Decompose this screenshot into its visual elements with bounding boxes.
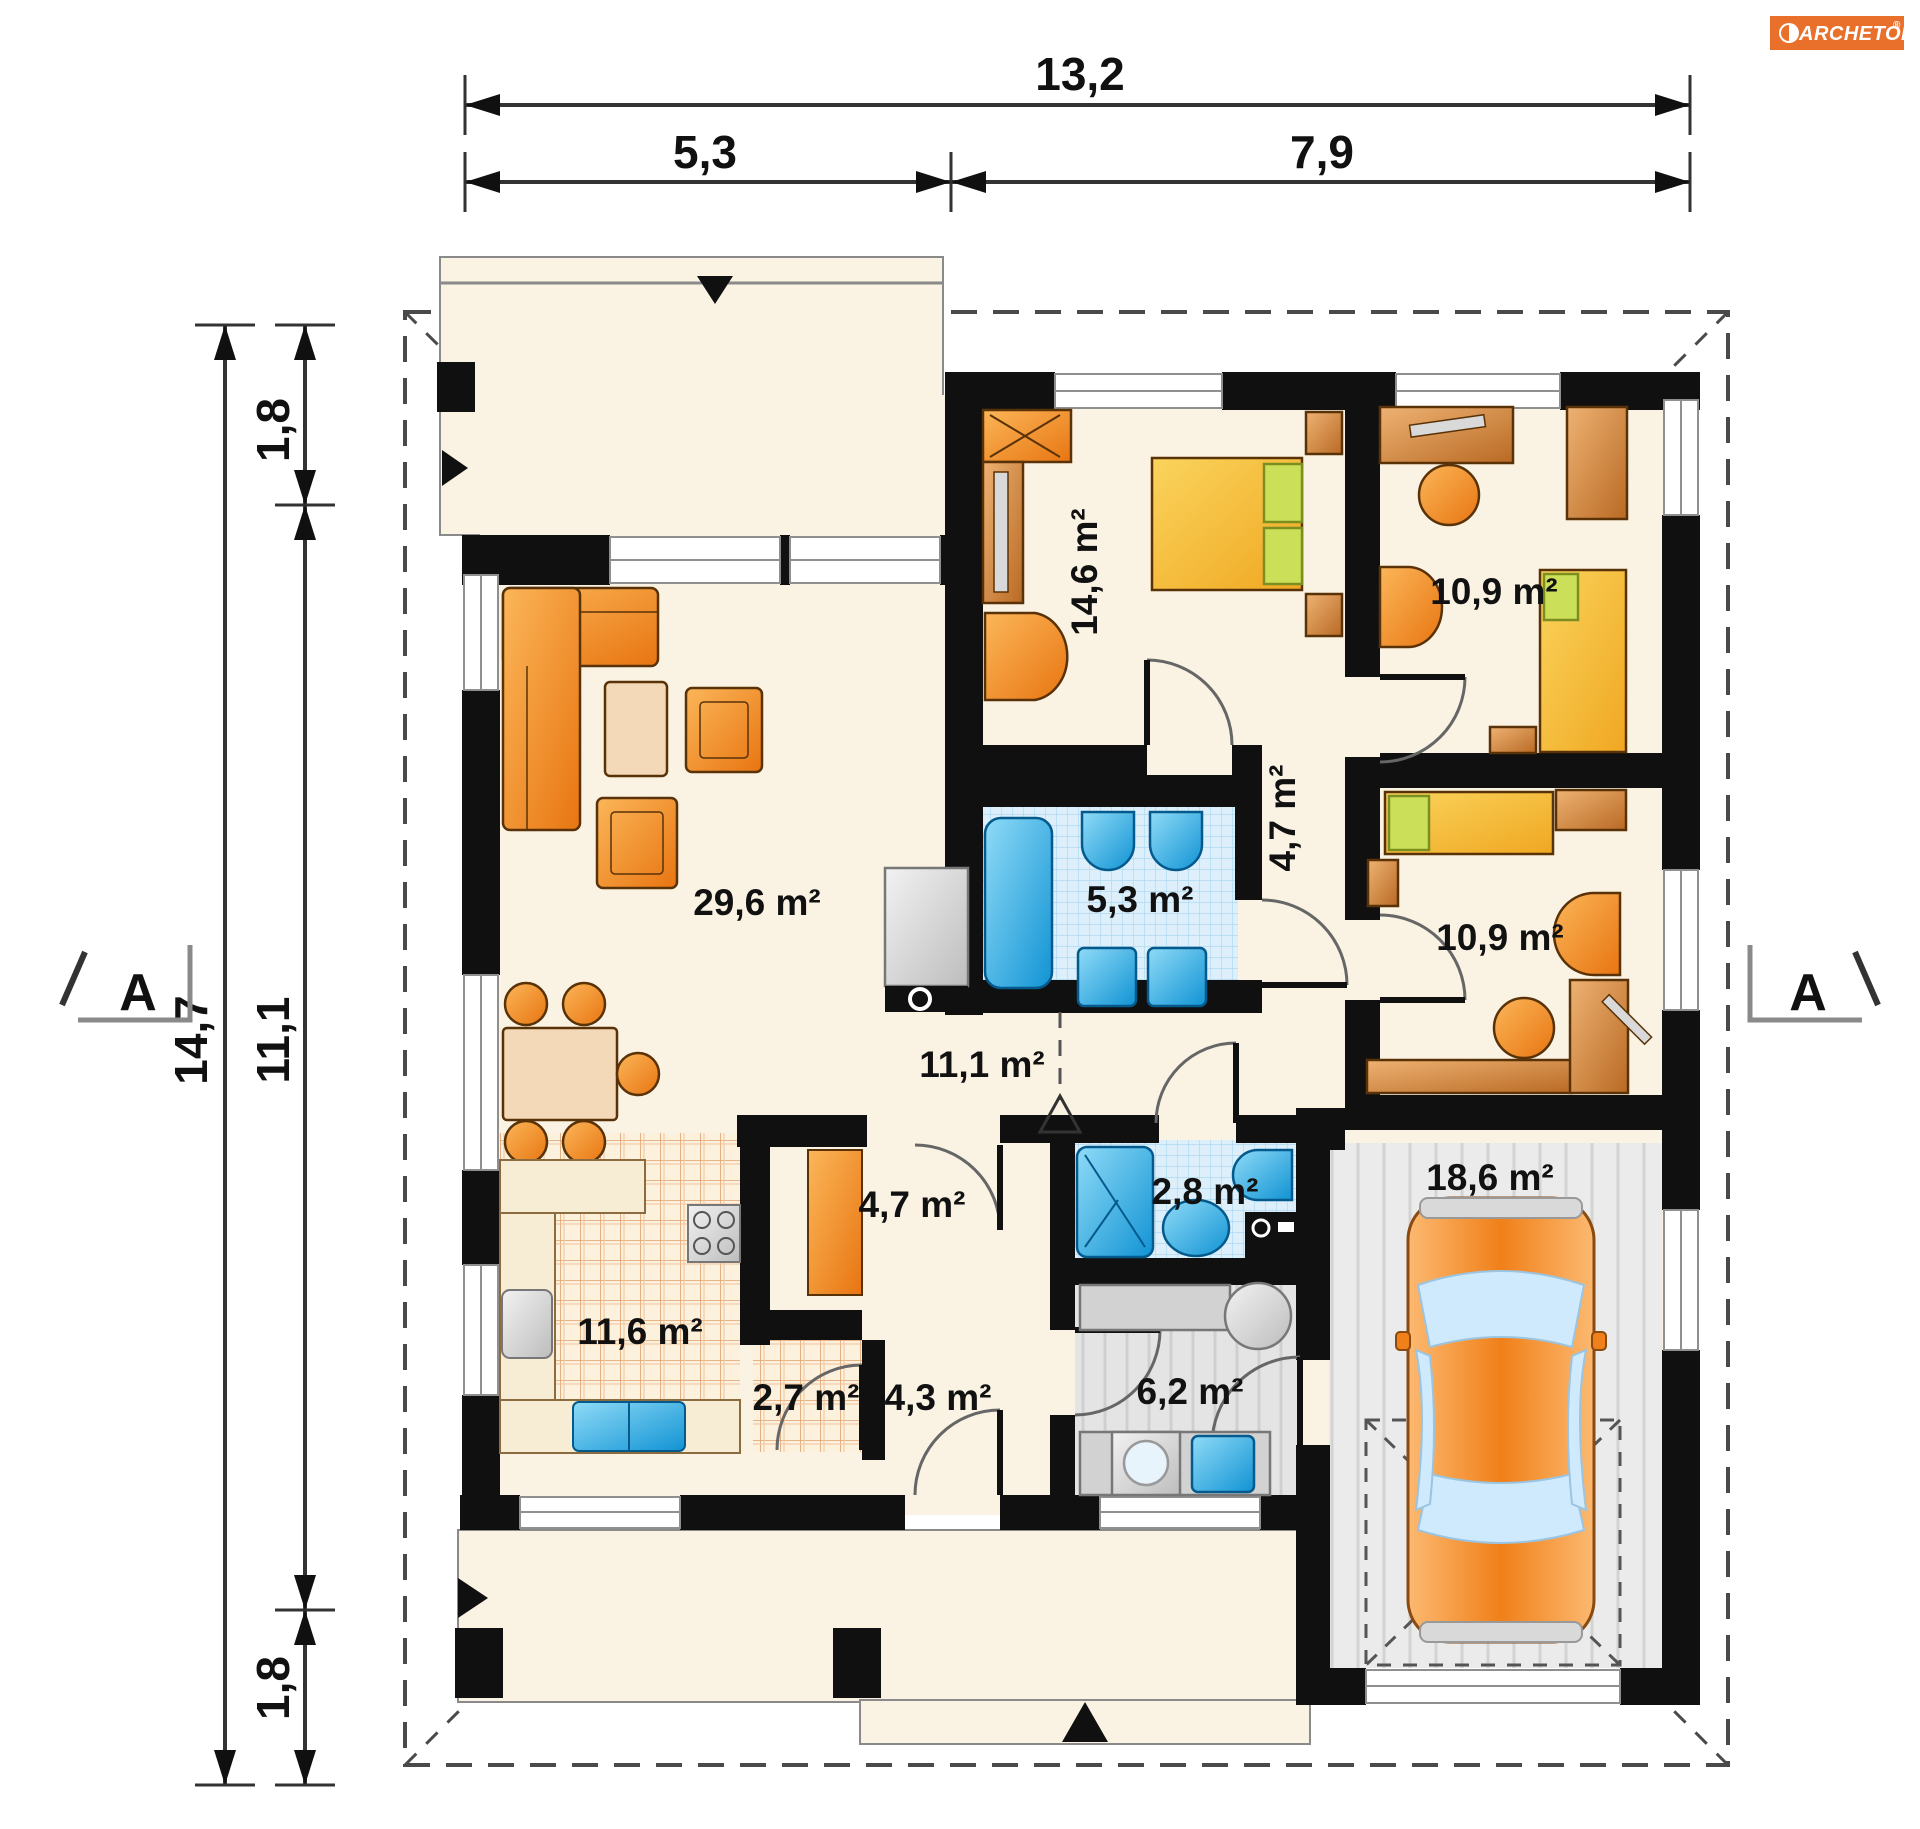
- dim-total-width: 13,2: [1035, 48, 1125, 100]
- label-kitchen: 11,6 m²: [577, 1311, 702, 1352]
- terrace-bottom: [455, 1530, 1310, 1744]
- armchair: [985, 613, 1067, 700]
- window: [1100, 1497, 1260, 1528]
- armchair: [1554, 893, 1620, 975]
- window: [790, 537, 940, 583]
- window: [1055, 374, 1222, 408]
- oven: [502, 1290, 552, 1358]
- dim-height-top: 1,8: [247, 398, 299, 462]
- floor-plan-drawing: 29,6 m² 14,6 m² 10,9 m² 4,7 m² 5,3 m² 10…: [0, 0, 1920, 1829]
- toilet: [1150, 812, 1202, 870]
- terrace-column: [455, 1628, 503, 1698]
- window: [520, 1497, 680, 1528]
- rear-window: [1418, 1271, 1584, 1347]
- label-bedroom: 14,6 m²: [1064, 508, 1105, 636]
- dimension-top-labels: 13,2 5,3 7,9: [673, 48, 1354, 178]
- wardrobe: [1567, 407, 1627, 519]
- garage-door: [1366, 1670, 1620, 1703]
- office-chair: [1494, 998, 1554, 1058]
- boiler: [1245, 1212, 1300, 1258]
- toilet: [1082, 812, 1134, 870]
- section-label-right: A: [1789, 964, 1827, 1022]
- label-bath-main: 5,3 m²: [1087, 879, 1194, 920]
- window: [464, 1265, 498, 1395]
- bathtub: [985, 818, 1052, 988]
- label-bath-small: 2,8 m²: [1152, 1171, 1259, 1212]
- label-hall-south: 4,3 m²: [885, 1377, 992, 1418]
- label-utility: 6,2 m²: [1137, 1371, 1244, 1412]
- windshield: [1418, 1474, 1584, 1543]
- label-child-top: 10,9 m²: [1430, 571, 1558, 612]
- window: [1664, 1210, 1698, 1350]
- sink: [1078, 948, 1136, 1006]
- water-heater: [1225, 1283, 1291, 1349]
- window: [1664, 870, 1698, 1010]
- sink: [1148, 948, 1206, 1006]
- floor-plan-page: 29,6 m² 14,6 m² 10,9 m² 4,7 m² 5,3 m² 10…: [0, 0, 1920, 1829]
- window: [1664, 400, 1698, 515]
- shelf: [1556, 790, 1626, 830]
- dim-height-bottom: 1,8: [247, 1656, 299, 1720]
- label-garage: 18,6 m²: [1426, 1157, 1554, 1198]
- section-marker-right: A: [1750, 945, 1878, 1022]
- dim-height-middle: 11,1: [247, 997, 299, 1084]
- label-child-right: 10,9 m²: [1436, 917, 1564, 958]
- office-chair: [1419, 465, 1479, 525]
- label-corridor-kitchen: 4,7 m²: [859, 1184, 966, 1225]
- section-label-left: A: [119, 964, 157, 1022]
- nightstand: [1306, 594, 1342, 636]
- dimension-left-labels: 14,7 1,8 11,1 1,8: [165, 398, 299, 1720]
- desk: [1367, 1060, 1572, 1093]
- window: [464, 575, 498, 690]
- sink: [1192, 1436, 1254, 1492]
- desk: [1380, 407, 1513, 463]
- fridge: [808, 1150, 862, 1295]
- terrace-column: [833, 1628, 881, 1698]
- window: [464, 975, 498, 1170]
- dim-width-right: 7,9: [1290, 126, 1354, 178]
- label-corridor-bedrooms: 4,7 m²: [1262, 765, 1303, 872]
- window: [1396, 374, 1560, 408]
- fireplace: [885, 868, 968, 1012]
- brand-logo: ARCHETON ®: [1770, 16, 1916, 50]
- nightstand: [1306, 412, 1342, 454]
- window: [610, 537, 780, 583]
- car: [1396, 1198, 1606, 1642]
- label-living: 29,6 m²: [693, 882, 821, 923]
- dim-width-left: 5,3: [673, 126, 737, 178]
- logo-registered: ®: [1893, 20, 1901, 31]
- dining-table: [503, 1028, 617, 1120]
- terrace-column: [437, 362, 475, 412]
- label-pantry: 2,7 m²: [753, 1377, 860, 1418]
- label-hall: 11,1 m²: [919, 1044, 1044, 1085]
